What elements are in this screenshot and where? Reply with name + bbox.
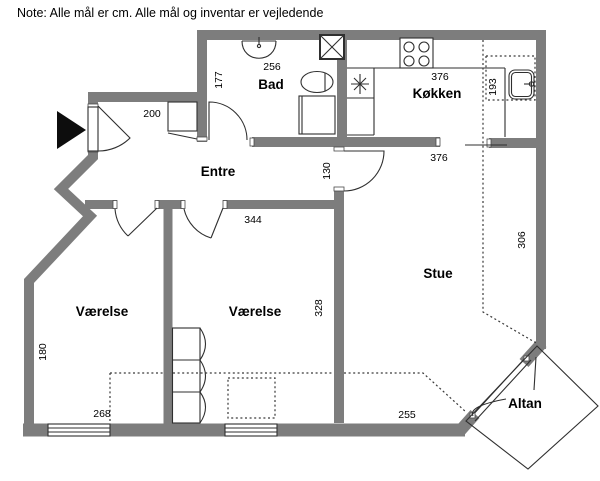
toilet-icon [301,72,333,93]
dim-stue-width: 376 [430,152,448,164]
kitchen-counter [347,68,505,137]
doors [98,102,531,421]
front-door [98,106,130,151]
entre-closet [168,102,197,139]
window-vaerelse-mid [225,424,277,436]
floor-plan: Note: Alle mål er cm. Alle mål og invent… [0,0,600,481]
wardrobe [173,328,206,423]
dim-bad-depth: 177 [213,71,225,89]
dim-bad-width: 256 [263,61,281,73]
kitchen-sink-icon [351,74,369,94]
dim-vaerelse-left-depth: 180 [37,343,49,361]
dim-koekken-width: 376 [431,71,449,83]
fixtures [168,35,534,423]
front-door-opening [88,107,98,151]
dim-vaerelse-mid-width: 344 [244,214,262,226]
shower-icon [299,96,335,134]
dim-passage-height: 130 [321,162,333,180]
dim-vaerelse-left-width: 268 [93,408,111,420]
dim-vaerelse-mid-depth: 328 [313,299,325,317]
dim-stue-bottom-width: 255 [398,409,416,421]
altan-leader-line-1 [472,399,506,416]
label-bad: Bad [258,77,284,92]
entrance-arrow-icon [57,111,86,149]
label-stue: Stue [423,266,453,281]
dimension-labels: 256 177 376 193 200 130 344 376 306 328 … [37,61,528,421]
vaerelse-left-door [115,208,157,236]
dim-niche-depth: 193 [487,78,499,96]
label-vaerelse-mid: Værelse [229,304,282,319]
dashed-line-stue [344,373,466,412]
dashed-furniture-vaerelse-mid [228,378,275,418]
bathroom-sink-icon [242,37,276,58]
label-koekken: Køkken [413,86,462,101]
label-entre: Entre [201,164,236,179]
altan-door [470,356,531,421]
stove-icon [400,38,433,68]
stue-door [344,151,384,191]
floor-plan-drawing: Bad Køkken Entre Stue Værelse Værelse Al… [0,0,600,481]
dim-entre-width: 200 [143,108,161,120]
label-vaerelse-left: Værelse [76,304,129,319]
utility-sink-icon [509,70,534,99]
labels: Bad Køkken Entre Stue Værelse Værelse Al… [76,77,542,411]
bad-door [209,102,247,140]
vaerelse-mid-door [184,208,223,238]
shaft-icon [320,35,344,59]
altan-leader-line-2 [534,357,536,390]
label-altan: Altan [508,396,542,411]
dim-stue-depth: 306 [516,231,528,249]
windows [48,107,277,436]
window-vaerelse-left [48,424,110,436]
